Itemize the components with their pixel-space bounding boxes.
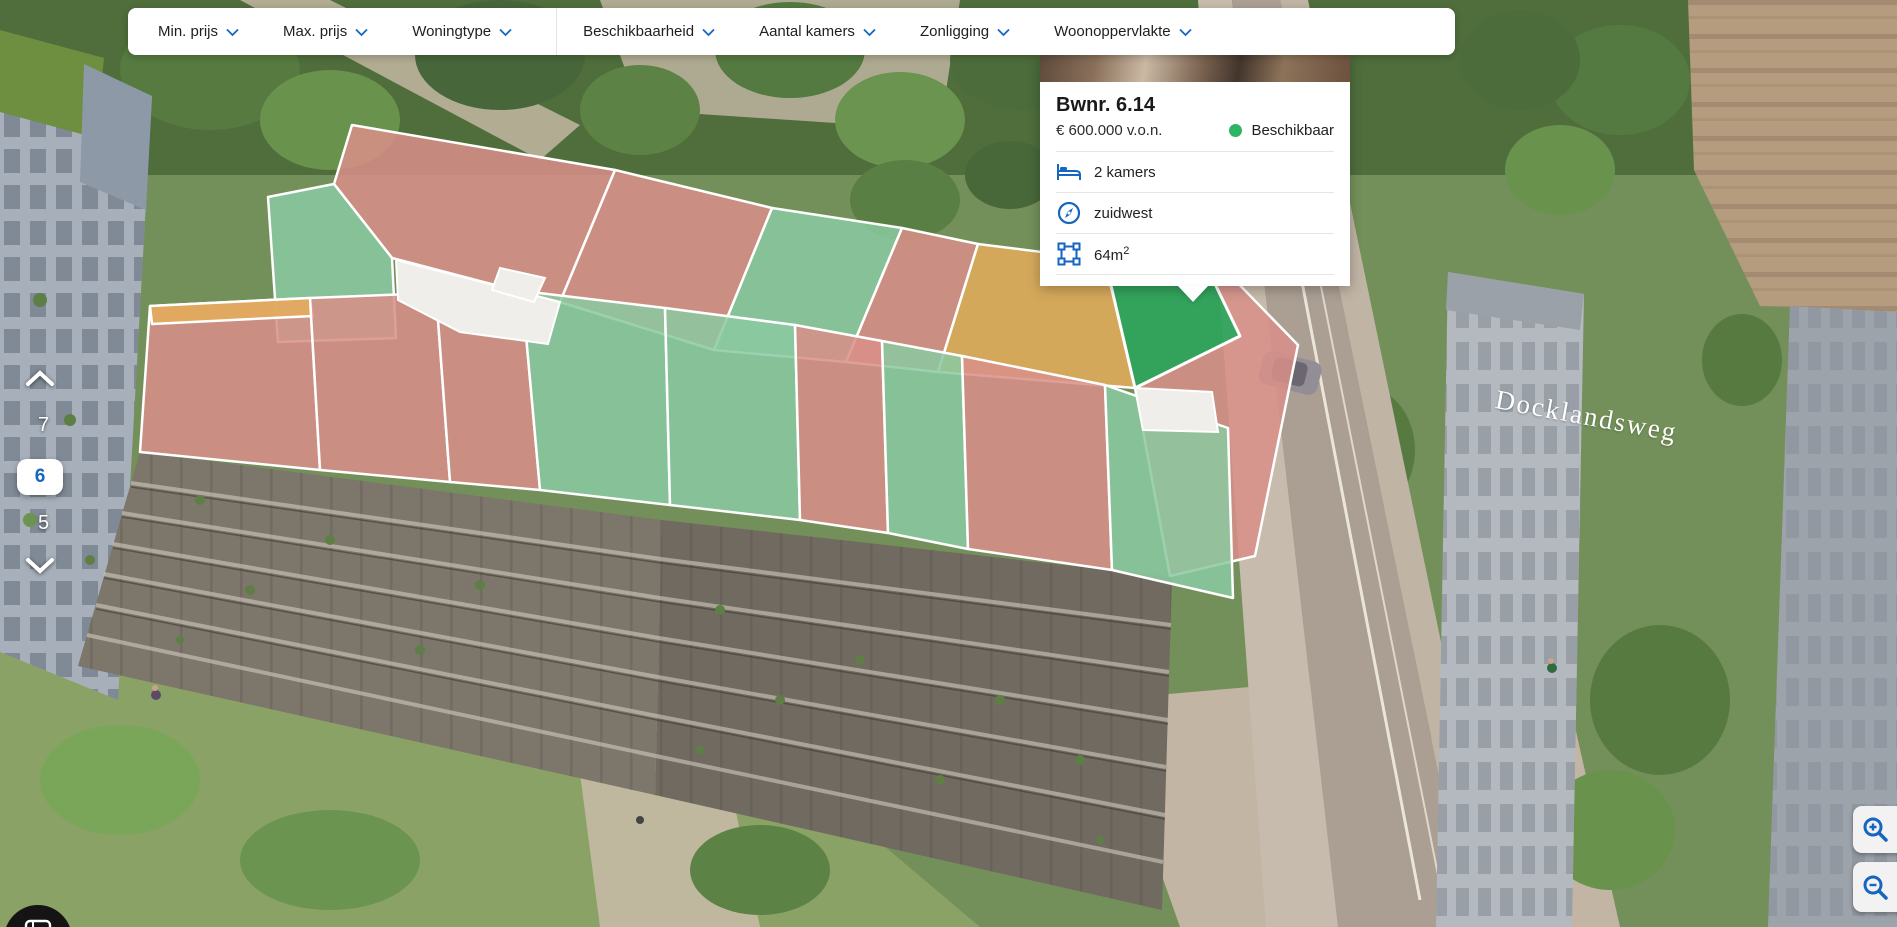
filter-group-features: BeschikbaarheidAantal kamersZonliggingWo… (583, 8, 1235, 55)
area-row: 64m2 (1056, 233, 1334, 274)
chevron-down-icon (863, 28, 876, 37)
filter-label: Woonoppervlakte (1054, 23, 1170, 40)
chevron-down-icon (702, 28, 715, 37)
filter-label: Min. prijs (158, 23, 218, 40)
filter-group-price: Min. prijsMax. prijsWoningtype (158, 8, 556, 55)
status-label: Beschikbaar (1251, 122, 1334, 139)
zoom-out-button[interactable] (1853, 862, 1897, 912)
cube-360-icon (23, 918, 53, 927)
floor-7[interactable]: 7 (38, 415, 49, 435)
unit-tooltip: Bwnr. 6.14 € 600.000 v.o.n. Beschikbaar (1040, 55, 1350, 286)
unit-price: € 600.000 v.o.n. (1056, 122, 1162, 139)
filter-divider (556, 8, 557, 55)
floor-up-button[interactable] (25, 370, 55, 387)
tooltip-pointer (1178, 286, 1208, 302)
status-dot-icon (1229, 124, 1242, 137)
zoom-in-button[interactable] (1853, 806, 1897, 853)
zoom-out-icon (1862, 874, 1889, 901)
floor-5[interactable]: 5 (38, 513, 49, 533)
area-label: 64m2 (1094, 245, 1129, 264)
unit-overlay-verkocht[interactable] (795, 325, 888, 533)
unit-overlay-verkocht[interactable] (962, 356, 1112, 570)
floor-6-selected[interactable]: 6 (17, 459, 63, 495)
area-icon (1056, 242, 1082, 266)
right-building (1436, 272, 1584, 927)
filter-label: Max. prijs (283, 23, 347, 40)
filter-woonoppervlakte[interactable]: Woonoppervlakte (1054, 23, 1191, 40)
filter-bar: Min. prijsMax. prijsWoningtype Beschikba… (128, 8, 1455, 55)
chevron-down-icon (1179, 28, 1192, 37)
zoom-in-icon (1862, 816, 1889, 843)
floor-selector: 7 6 5 (0, 370, 80, 574)
orientation-label: zuidwest (1094, 205, 1152, 222)
unit-number: Bwnr. 6.14 (1056, 94, 1334, 117)
chevron-down-icon (355, 28, 368, 37)
unit-overlay-verkocht[interactable] (310, 293, 450, 482)
filter-max-prijs[interactable]: Max. prijs (283, 23, 368, 40)
tooltip-bottom-divider (1056, 274, 1334, 286)
filter-zonligging[interactable]: Zonligging (920, 23, 1010, 40)
filter-label: Aantal kamers (759, 23, 855, 40)
filter-beschikbaarheid[interactable]: Beschikbaarheid (583, 23, 715, 40)
floor-down-button[interactable] (25, 557, 55, 574)
rooms-label: 2 kamers (1094, 164, 1156, 181)
filter-label: Zonligging (920, 23, 989, 40)
orientation-row: zuidwest (1056, 192, 1334, 233)
app-viewport: Docklandsweg Min. prijsMax. prijsWoningt… (0, 0, 1897, 927)
rooms-row: 2 kamers (1056, 151, 1334, 192)
status-badge: Beschikbaar (1229, 122, 1334, 139)
unit-overlay-beschikbaar[interactable] (665, 308, 800, 520)
chevron-down-icon (226, 28, 239, 37)
filter-aantal-kamers[interactable]: Aantal kamers (759, 23, 876, 40)
chevron-down-icon (499, 28, 512, 37)
filter-min-prijs[interactable]: Min. prijs (158, 23, 239, 40)
unit-photo-thumbnail (1040, 55, 1350, 82)
filter-label: Beschikbaarheid (583, 23, 694, 40)
filter-woningtype[interactable]: Woningtype (412, 23, 512, 40)
compass-icon (1056, 201, 1082, 225)
chevron-down-icon (997, 28, 1010, 37)
filter-label: Woningtype (412, 23, 491, 40)
unit-overlay-beschikbaar[interactable] (882, 341, 968, 549)
bed-icon (1056, 162, 1082, 182)
scene-render (0, 0, 1897, 927)
